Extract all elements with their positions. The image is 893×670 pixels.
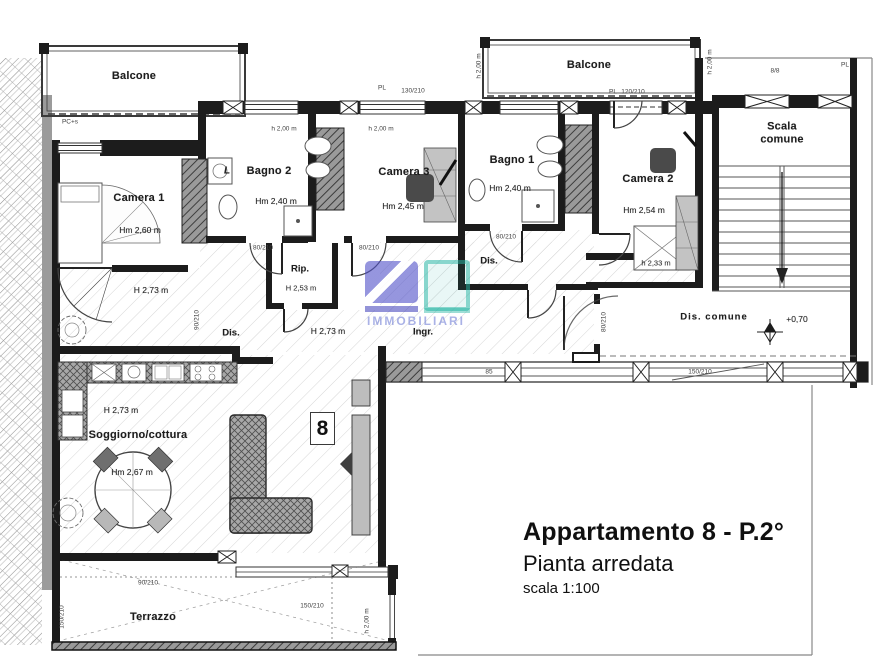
height-rip: H 2,53 m [286, 284, 316, 293]
height-dis-left: H 2,73 m [134, 285, 169, 295]
dim-label: 90/210 [194, 310, 201, 330]
dim-label: h 2,00 m [271, 126, 296, 133]
dim-label: PL [841, 62, 849, 69]
label-bagno-2: Bagno 2 [247, 165, 292, 177]
plan-subtitle: Pianta arredata [523, 551, 784, 577]
watermark-blue-bar [365, 306, 418, 312]
dim-label: PL [609, 89, 617, 96]
watermark-blue-mark [365, 261, 418, 303]
height-soggiorno: H 2,73 m [104, 405, 139, 415]
label-scala-comune: Scala comune [747, 120, 817, 145]
label-dis-left: Dis. [222, 328, 239, 339]
height-camera-2: Hm 2,54 m [623, 205, 665, 215]
height-ingr: H 2,73 m [311, 326, 346, 336]
dim-label: 130/210 [401, 88, 425, 95]
dim-label: 150/210 [59, 605, 66, 629]
label-camera-1: Camera 1 [113, 192, 164, 204]
apartment-number-badge: 8 [310, 412, 335, 445]
height-bagno-1: Hm 2,40 m [489, 183, 531, 193]
dim-label: 150/210 [688, 369, 712, 376]
height-bagno-2: Hm 2,40 m [255, 196, 297, 206]
dis-comune-detail [600, 319, 860, 356]
label-ingr: Ingr. [413, 327, 433, 338]
table-height-soggiorno: Hm 2,67 m [111, 467, 153, 477]
label-dis-right: Dis. [480, 256, 497, 267]
label-balcone-1: Balcone [112, 70, 156, 82]
elevation-marker [757, 319, 783, 345]
dim-label: 80/210 [253, 245, 273, 252]
dim-label: PC+s [62, 119, 78, 126]
label-camera-2: Camera 2 [622, 173, 673, 185]
height-camera-1: Hm 2,60 m [119, 225, 161, 235]
plan-title: Appartamento 8 - P.2° [523, 518, 784, 547]
label-balcone-2: Balcone [567, 59, 611, 71]
stairs [712, 166, 850, 291]
height-camera-3: Hm 2,45 m [382, 201, 424, 211]
low-height-camera-2: h 2,33 m [641, 259, 670, 268]
dim-label: 150/210 [300, 603, 324, 610]
dim-label: PL [378, 85, 386, 92]
label-camera-3: Camera 3 [378, 166, 429, 178]
floor-plan-page: IMMOBILIARI Balcone Balcone Scala comune… [0, 0, 893, 670]
south-wall-band [386, 353, 868, 382]
watermark-teal-mark [424, 260, 470, 311]
dim-label: h 2,00 m [364, 608, 371, 633]
dim-label: 120/210 [621, 89, 645, 96]
label-soggiorno: Soggiorno/cottura [89, 429, 188, 441]
dim-label: 85 [485, 369, 492, 376]
dim-label: 80/210 [496, 234, 516, 241]
watermark-teal-bar [424, 308, 470, 313]
dim-label: h 2,00 m [476, 53, 483, 78]
label-dis-comune: Dis. comune [680, 312, 748, 323]
label-bagno-1: Bagno 1 [490, 154, 535, 166]
label-lavatrice: L [224, 166, 230, 177]
dim-label: h 2,00 m [707, 49, 714, 74]
dim-label: 80/210 [601, 312, 608, 332]
dim-label: h 2,00 m [368, 126, 393, 133]
dim-label: 90/210 [138, 580, 158, 587]
title-block: Appartamento 8 - P.2° Pianta arredata sc… [523, 518, 784, 597]
elevation-value: +0,70 [786, 314, 808, 324]
label-terrazzo: Terrazzo [130, 611, 176, 623]
dim-label: 80/210 [359, 245, 379, 252]
dim-label: 8/8 [770, 68, 779, 75]
label-rip: Rip. [291, 264, 309, 275]
plan-scale: scala 1:100 [523, 580, 784, 597]
